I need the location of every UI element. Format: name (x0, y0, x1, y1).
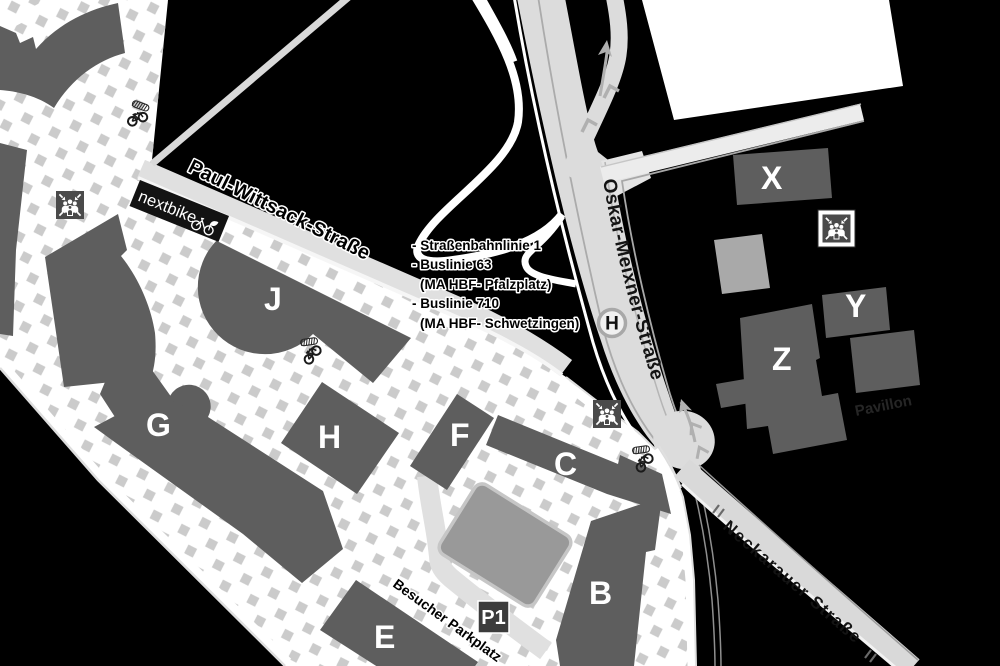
svg-text:G: G (146, 407, 171, 443)
svg-text:Z: Z (772, 341, 792, 377)
svg-text:E: E (374, 619, 395, 655)
svg-text:C: C (554, 446, 577, 482)
svg-text:X: X (761, 160, 783, 196)
svg-text:(MA HBF- Pfalzplatz): (MA HBF- Pfalzplatz) (420, 277, 552, 292)
svg-text:J: J (264, 281, 282, 317)
svg-text:- Straßenbahnlinie 1: - Straßenbahnlinie 1 (412, 238, 542, 253)
svg-text:H: H (318, 419, 341, 455)
svg-text:F: F (450, 417, 470, 453)
svg-text:(MA HBF- Schwetzingen): (MA HBF- Schwetzingen) (420, 316, 579, 331)
svg-text:- Buslinie 63: - Buslinie 63 (412, 257, 492, 272)
svg-text:P1: P1 (481, 607, 505, 629)
svg-text:H: H (605, 314, 619, 335)
svg-text:Y: Y (845, 288, 866, 324)
svg-text:- Buslinie 710: - Buslinie 710 (412, 296, 499, 311)
svg-text:B: B (589, 575, 612, 611)
